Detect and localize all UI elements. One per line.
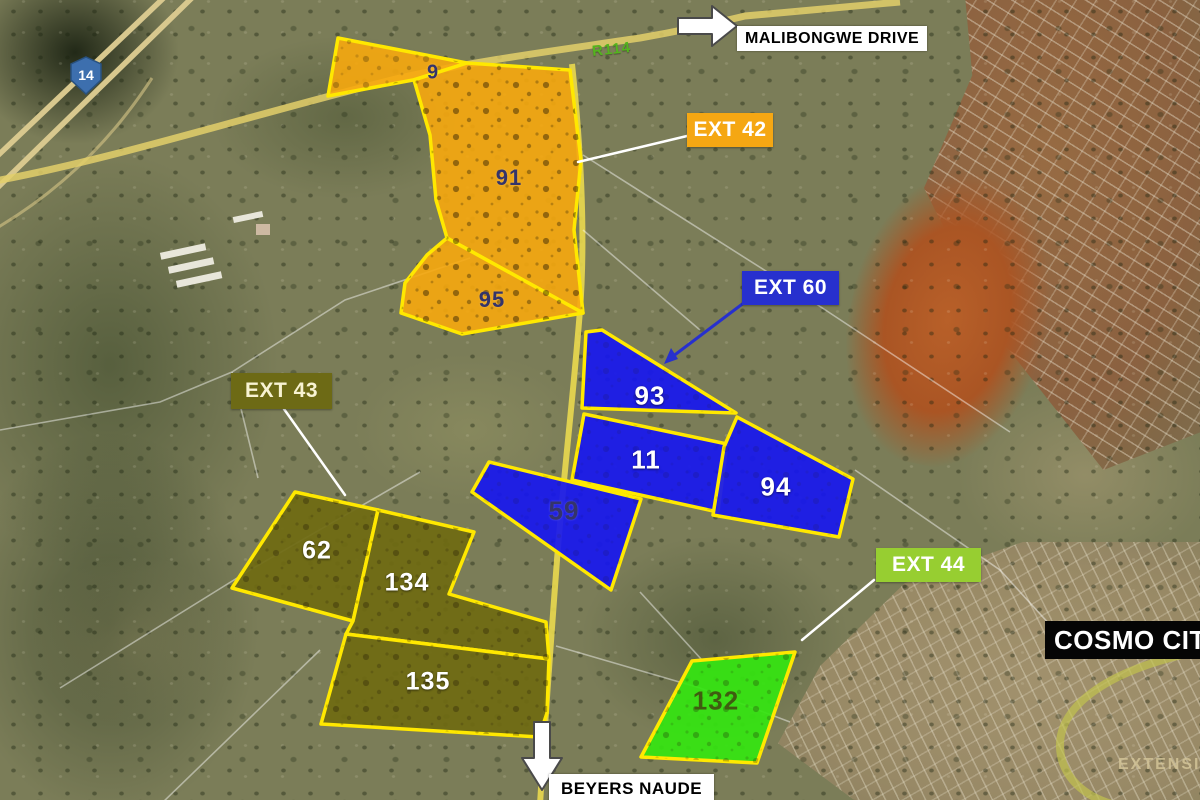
ext-43-badge: EXT 43 (231, 373, 332, 409)
cosmo-loop-road (1060, 650, 1200, 800)
ext43-tree-texture (232, 492, 549, 737)
farm-buildings (160, 211, 270, 288)
ext60-leader-arrowhead (664, 348, 678, 364)
parcel-number-94: 94 (761, 472, 792, 503)
ext44-leader-line (802, 580, 874, 640)
malibongwe-direction-arrow-icon (678, 6, 737, 46)
ext-42-badge: EXT 42 (687, 113, 773, 147)
parcel-number-135: 135 (406, 668, 451, 697)
n14-highway (0, 0, 200, 232)
parcel-number-91: 91 (496, 165, 522, 191)
cosmo-city-label: COSMO CITY (1045, 621, 1200, 659)
ext60-tree-texture (472, 330, 853, 590)
parcel-number-95: 95 (479, 287, 505, 313)
ext42-tree-texture (328, 38, 583, 334)
extension-basemap-label: EXTENSI (1118, 756, 1200, 774)
ext-60-badge: EXT 60 (742, 271, 839, 305)
parcel-number-134: 134 (385, 569, 430, 598)
ext-44-badge: EXT 44 (876, 548, 981, 582)
ext42-leader-line (578, 136, 687, 162)
beyers-naude-label: BEYERS NAUDE (549, 774, 714, 800)
ext60-leader-line (668, 302, 745, 360)
map-vector-layer: 14 (0, 0, 1200, 800)
n14-shield-number: 14 (78, 67, 94, 83)
malibongwe-drive-label: MALIBONGWE DRIVE (737, 26, 927, 51)
parcel-number-62: 62 (302, 537, 332, 566)
aerial-map: 14 MALIBONGWE DRIVE BEYERS NAUDE COSMO C… (0, 0, 1200, 800)
parcel-number-59: 59 (549, 496, 580, 527)
parcel-number-132: 132 (693, 686, 739, 717)
parcel-number-9: 9 (427, 62, 439, 85)
parcel-number-11: 11 (631, 445, 661, 476)
ext43-leader-line (284, 409, 345, 495)
parcel-number-93: 93 (635, 381, 666, 412)
